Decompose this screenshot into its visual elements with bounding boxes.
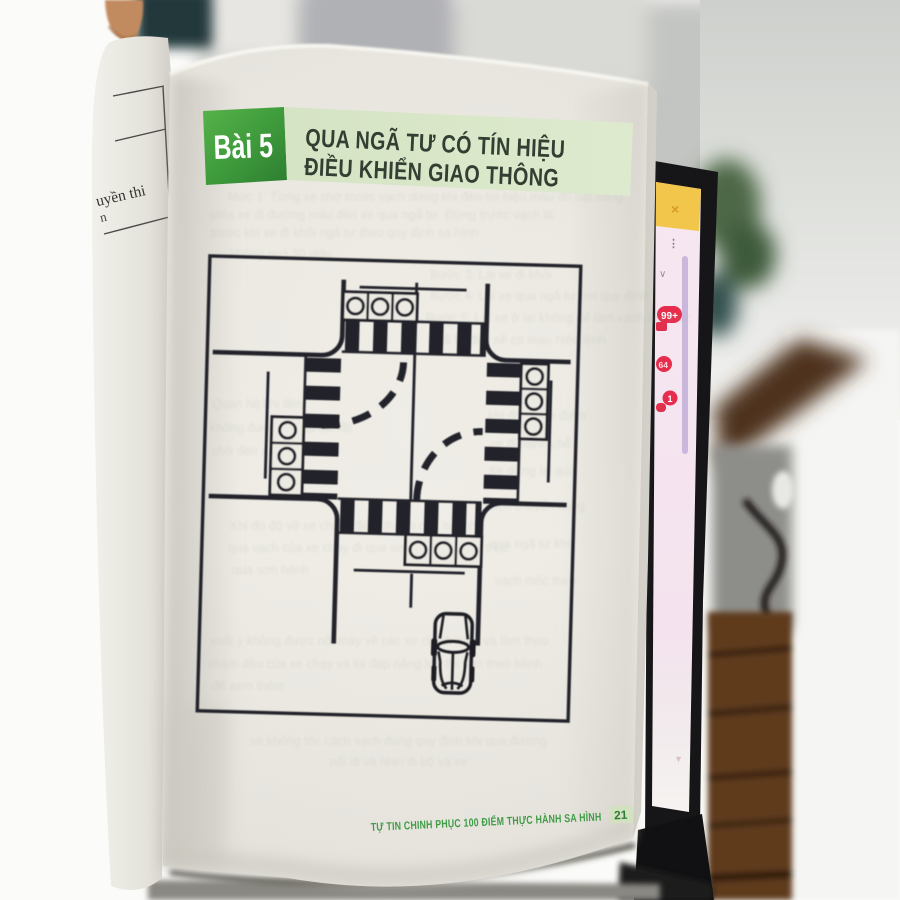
svg-text:64: 64 (659, 360, 669, 370)
svg-text:21: 21 (614, 808, 628, 823)
svg-text:phía xe đi đường màu đèn xe qu: phía xe đi đường màu đèn xe qua ngã tư. … (210, 208, 553, 222)
svg-text:trước khi xe đi khỏi ngã tư th: trước khi xe đi khỏi ngã tư theo quy địn… (210, 226, 479, 240)
svg-text:xuất ý không được nổi máy về c: xuất ý không được nổi máy về các xe chín… (210, 634, 548, 648)
svg-text:qua sơn hành: qua sơn hành (232, 563, 309, 577)
svg-text:1: 1 (668, 394, 673, 404)
svg-text:Bước 3: Lái xe đi khỏi: Bước 3: Lái xe đi khỏi (430, 268, 551, 282)
svg-text:xe không tốc cách vạch đúng qu: xe không tốc cách vạch đúng quy định khi… (250, 734, 547, 748)
svg-text:vạch mốc theo: vạch mốc theo (495, 574, 576, 588)
svg-text:×: × (671, 201, 679, 217)
svg-text:▼: ▼ (674, 754, 683, 764)
svg-text:Quan hệ khi đèn: Quan hệ khi đèn (212, 397, 304, 411)
svg-text:chậm đều của xe chạy và lùi đạ: chậm đều của xe chạy và lùi đạp nặng lực… (208, 657, 542, 671)
svg-text:nổi đi và nhịn đi bộ và xe: nổi đi và nhịn đi bộ và xe (330, 755, 468, 769)
svg-text:Bài 5: Bài 5 (213, 127, 274, 167)
svg-text:⋮: ⋮ (668, 238, 679, 250)
svg-text:∨: ∨ (659, 269, 666, 280)
svg-text:để xem thêm: để xem thêm (212, 679, 284, 693)
